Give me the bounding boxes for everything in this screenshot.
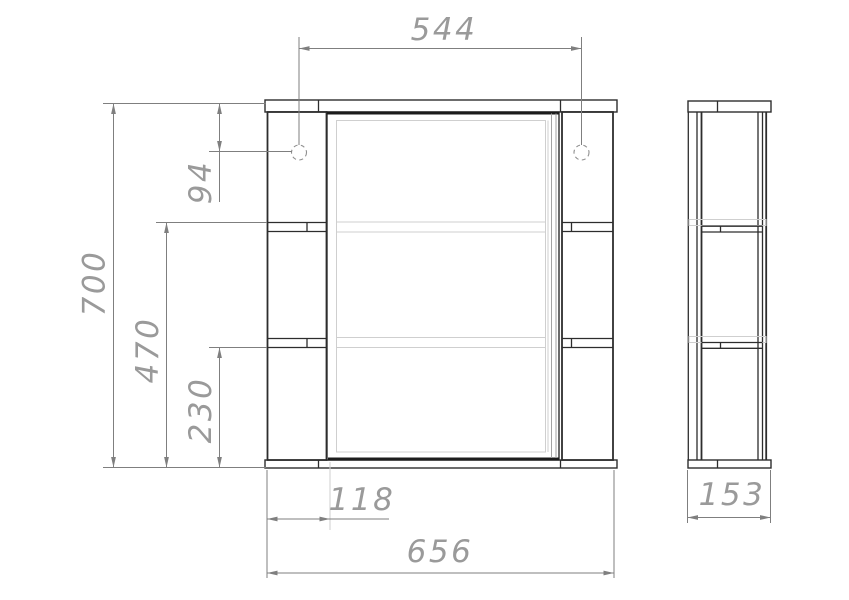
left-compartment [268, 112, 327, 460]
mirror-door [327, 112, 559, 460]
dimension-overall-width: 656 [267, 470, 614, 578]
dim-label-hinge-spacing: 544 [411, 12, 478, 48]
side-top-panel [688, 101, 771, 112]
front-view [265, 100, 617, 468]
dim-label-side-section: 118 [329, 482, 396, 518]
dim-label-overall-height: 700 [77, 250, 113, 317]
dimension-overall-height: 700 [77, 104, 267, 468]
side-shelf-through-line [689, 220, 766, 226]
side-view [688, 101, 771, 468]
dimension-lower-shelf: 230 [183, 348, 267, 468]
side-bottom-panel [688, 460, 771, 468]
dim-label-hinge-offset: 94 [183, 160, 219, 204]
dim-label-depth: 153 [699, 477, 766, 513]
top-panel [265, 100, 617, 112]
drawing-canvas: 544 700 470 230 94 [0, 0, 849, 600]
dimension-side-section: 118 [267, 462, 395, 530]
dimension-depth: 153 [688, 470, 771, 523]
dim-label-overall-width: 656 [407, 534, 474, 570]
side-shelf-through-line [689, 337, 766, 343]
dim-label-lower-shelf: 230 [183, 377, 219, 444]
dim-label-upper-shelf: 470 [130, 317, 166, 384]
right-compartment [562, 112, 613, 460]
cabinet-technical-drawing: 544 700 470 230 94 [0, 0, 849, 600]
bottom-panel [265, 460, 617, 468]
